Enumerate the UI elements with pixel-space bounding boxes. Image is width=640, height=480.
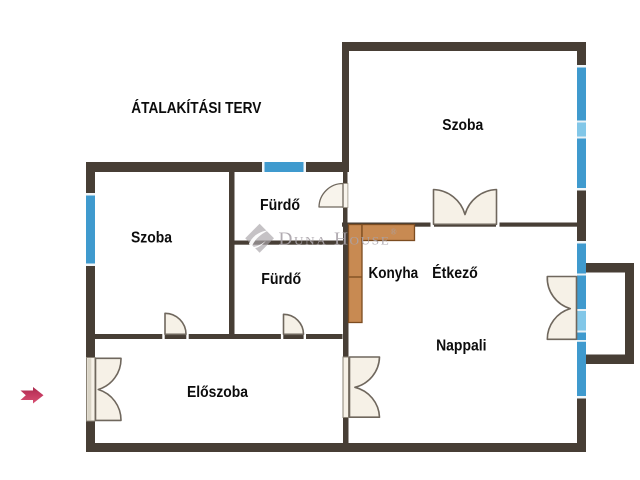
svg-text:®: ® bbox=[391, 228, 397, 237]
svg-text:Előszoba: Előszoba bbox=[187, 384, 248, 401]
svg-text:Étkező: Étkező bbox=[432, 263, 478, 282]
svg-text:Nappali: Nappali bbox=[436, 338, 486, 355]
svg-text:Szoba: Szoba bbox=[131, 229, 172, 246]
svg-text:ÁTALAKÍTÁSI TERV: ÁTALAKÍTÁSI TERV bbox=[131, 98, 261, 117]
svg-text:Fürdő: Fürdő bbox=[260, 197, 300, 214]
svg-text:Konyha: Konyha bbox=[369, 265, 419, 282]
svg-text:Fürdő: Fürdő bbox=[261, 271, 301, 288]
svg-text:Szoba: Szoba bbox=[442, 117, 483, 134]
svg-text:Duna House: Duna House bbox=[279, 229, 391, 249]
